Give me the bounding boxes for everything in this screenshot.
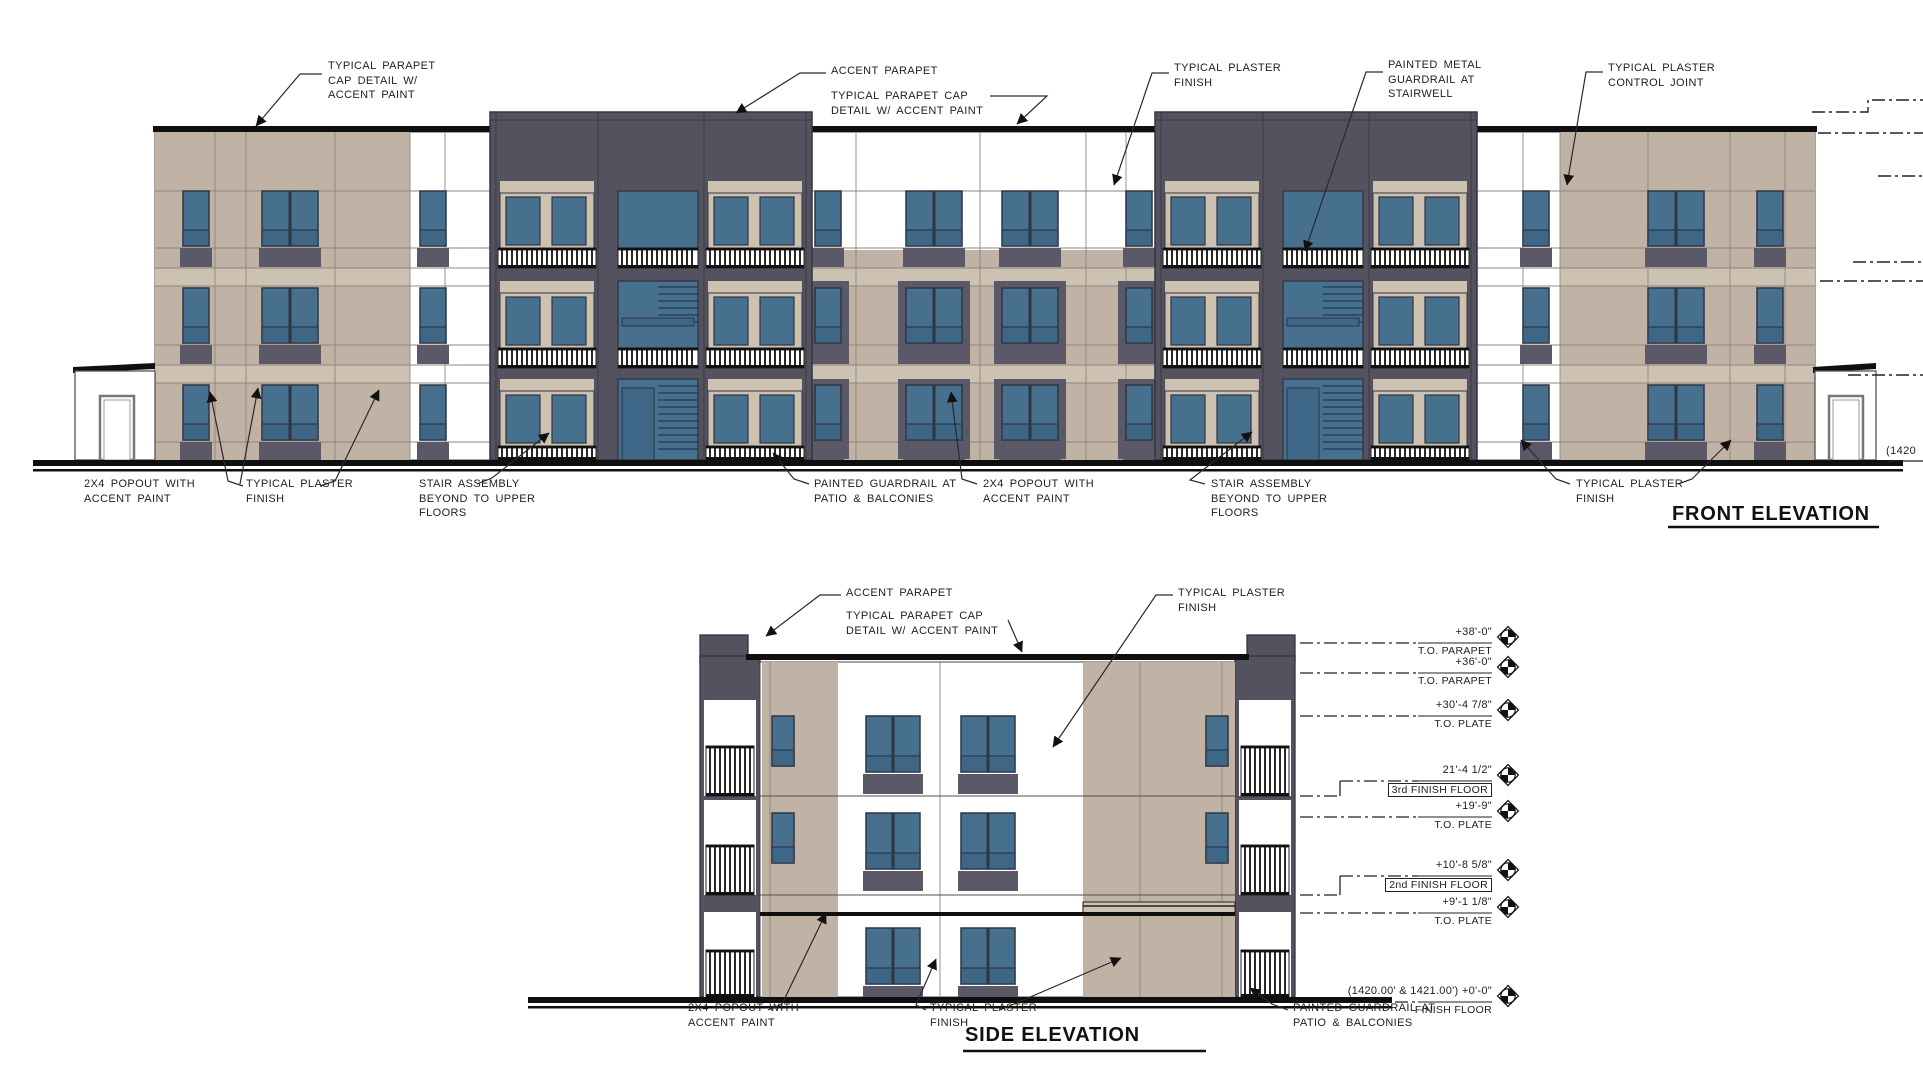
datum-value: +19'-9" (1455, 800, 1492, 812)
callout-side-parapet-cap: TYPICAL PARAPET CAP DETAIL W/ ACCENT PAI… (846, 609, 998, 638)
callout-stair-right: STAIR ASSEMBLY BEYOND TO UPPER FLOORS (1211, 477, 1327, 521)
callout-side-accent-parapet: ACCENT PARAPET (846, 586, 953, 601)
datum-label: T.O. PLATE (1434, 915, 1492, 927)
datum-label: T.O. PLATE (1434, 718, 1492, 730)
datum-value: (1420.00' & 1421.00') +0'-0" (1348, 985, 1492, 997)
datum-value: +9'-1 1/8" (1442, 896, 1492, 908)
datum-label: 2nd FINISH FLOOR (1385, 878, 1492, 892)
benchmark-icon (1496, 858, 1520, 887)
callout-accent-parapet: ACCENT PARAPET (831, 64, 938, 79)
datum-value: +36'-0" (1455, 656, 1492, 668)
datum-value: +38'-0" (1455, 626, 1492, 638)
callout-popout-mid: 2X4 POPOUT WITH ACCENT PAINT (983, 477, 1094, 506)
benchmark-icon (1496, 895, 1520, 924)
callout-parapet-cap-left: TYPICAL PARAPET CAP DETAIL W/ ACCENT PAI… (328, 59, 436, 103)
datum-label: T.O. PLATE (1434, 819, 1492, 831)
datum-value: 21'-4 1/2" (1443, 764, 1492, 776)
callout-plaster-bottom-right: TYPICAL PLASTER FINISH (1576, 477, 1683, 506)
callout-side-plaster-top: TYPICAL PLASTER FINISH (1178, 586, 1285, 615)
benchmark-icon (1496, 984, 1520, 1013)
elevation-drawing (0, 0, 1923, 1077)
callout-side-popout: 2X4 POPOUT WITH ACCENT PAINT (688, 1001, 799, 1030)
callout-control-joint: TYPICAL PLASTER CONTROL JOINT (1608, 61, 1715, 90)
callout-parapet-cap-mid: TYPICAL PARAPET CAP DETAIL W/ ACCENT PAI… (831, 89, 983, 118)
benchmark-icon (1496, 625, 1520, 654)
callout-plaster-top: TYPICAL PLASTER FINISH (1174, 61, 1281, 90)
datum-value: +10'-8 5/8" (1436, 859, 1492, 871)
partial-datum-note: (1420 (1886, 444, 1916, 459)
benchmark-icon (1496, 799, 1520, 828)
datum-label: 3rd FINISH FLOOR (1388, 783, 1492, 797)
side-elevation-title: SIDE ELEVATION (965, 1024, 1140, 1047)
benchmark-icon (1496, 763, 1520, 792)
benchmark-icon (1496, 698, 1520, 727)
callout-stair-left: STAIR ASSEMBLY BEYOND TO UPPER FLOORS (419, 477, 535, 521)
callout-popout-left: 2X4 POPOUT WITH ACCENT PAINT (84, 477, 195, 506)
elevation-sheet: TYPICAL PARAPET CAP DETAIL W/ ACCENT PAI… (0, 0, 1923, 1077)
front-elevation-title: FRONT ELEVATION (1672, 503, 1870, 526)
callout-guardrail-patio: PAINTED GUARDRAIL AT PATIO & BALCONIES (814, 477, 956, 506)
datum-label: T.O. PARAPET (1418, 675, 1492, 687)
callout-plaster-bottom-left: TYPICAL PLASTER FINISH (246, 477, 353, 506)
datum-label: FINISH FLOOR (1415, 1004, 1492, 1016)
callout-metal-guardrail: PAINTED METAL GUARDRAIL AT STAIRWELL (1388, 58, 1481, 102)
benchmark-icon (1496, 655, 1520, 684)
datum-value: +30'-4 7/8" (1436, 699, 1492, 711)
